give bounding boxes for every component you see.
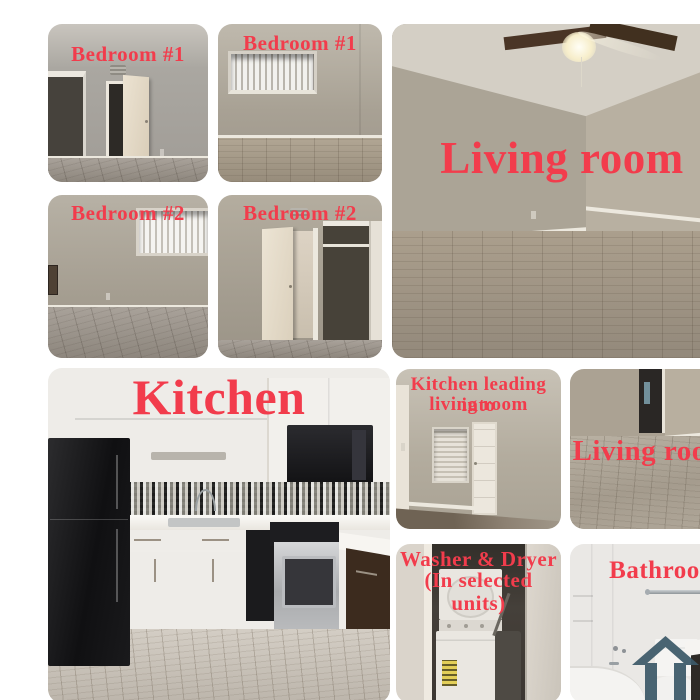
paneled-door	[472, 422, 497, 515]
photo-living-room-small: Living room	[570, 369, 700, 529]
photo-label-living-room-small: Living room	[570, 436, 700, 467]
photo-bedroom2-a: Bedroom #2	[48, 195, 208, 358]
towel-bar	[645, 590, 700, 594]
photo-label-living-room-main: Living room	[392, 134, 700, 183]
cabinet-handle	[134, 539, 161, 541]
photo-label-bedroom1-b: Bedroom #1	[218, 32, 382, 55]
doorway-window-glimpse	[644, 382, 651, 404]
photo-bedroom2-b: Bedroom #2	[218, 195, 382, 358]
photo-label-washer-dryer-line1: Washer & Dryer	[396, 548, 561, 571]
wood-floor	[48, 158, 208, 182]
door-edge	[48, 265, 58, 295]
sink-basin	[168, 518, 240, 527]
photo-washer-dryer: Washer & Dryer (In selected units)	[396, 544, 561, 700]
oven-window	[282, 556, 336, 609]
cabinet-handle	[212, 559, 214, 582]
lower-cabinets	[116, 530, 260, 631]
window-blinds	[228, 51, 318, 94]
photo-bedroom1-a: Bedroom #1	[48, 24, 208, 182]
door-knob	[289, 285, 292, 288]
refrigerator-handle	[116, 455, 118, 509]
microwave-control-panel	[352, 430, 366, 480]
shower-shelf	[573, 595, 593, 597]
wood-floor	[218, 138, 382, 182]
light-switch	[401, 443, 405, 451]
shower-valve	[613, 646, 618, 651]
photo-living-room-main: Living room	[392, 24, 700, 358]
photo-label-bedroom2-a: Bedroom #2	[48, 202, 208, 225]
fan-pull-chain	[581, 57, 582, 87]
photo-label-bathroom: Bathroom	[596, 557, 700, 584]
water-heater	[495, 631, 521, 700]
photo-label-kitchen: Kitchen	[48, 370, 390, 424]
closet-sliding-door	[369, 221, 382, 348]
photo-kitchen: Kitchen	[48, 368, 390, 700]
photo-collage: Bedroom #1 Bedroom #1 Living room Bedroo…	[0, 0, 700, 700]
wall-vent	[110, 65, 126, 74]
cabinet-handle	[154, 559, 156, 582]
shower-shelf	[573, 620, 593, 622]
wall-outlet	[531, 211, 536, 219]
countertop	[116, 515, 390, 530]
hallway-through-door	[290, 231, 315, 339]
right-wall	[665, 369, 700, 436]
wall-outlet	[160, 149, 164, 156]
door-frame	[313, 228, 318, 342]
wood-floor	[48, 307, 208, 358]
photo-bedroom1-b: Bedroom #1	[218, 24, 382, 182]
wood-floor	[392, 231, 700, 358]
tub-spout	[609, 662, 619, 665]
photo-kitchen-leading: Kitchen leading into living room	[396, 369, 561, 529]
control-knob	[464, 624, 468, 628]
refrigerator-handle	[116, 529, 118, 603]
window-blinds	[432, 427, 469, 484]
photo-label-bedroom2-b: Bedroom #2	[218, 202, 382, 225]
energy-label	[442, 660, 457, 685]
cabinet-handle	[202, 539, 229, 541]
wall-shelf	[151, 452, 226, 460]
house-icon	[632, 634, 699, 700]
wood-floor	[218, 340, 382, 358]
photo-label-washer-dryer-line2: (In selected units)	[396, 569, 561, 614]
mosaic-backsplash	[116, 482, 390, 517]
wall-outlet	[106, 293, 110, 300]
dark-doorway	[639, 369, 665, 433]
photo-label-bedroom1-a: Bedroom #1	[48, 43, 208, 66]
refrigerator-freezer-seam	[50, 519, 129, 520]
baseboard	[409, 502, 475, 511]
towel-bar-bracket	[645, 589, 650, 595]
photo-label-kitchen-leading-line2: living room	[396, 395, 561, 416]
